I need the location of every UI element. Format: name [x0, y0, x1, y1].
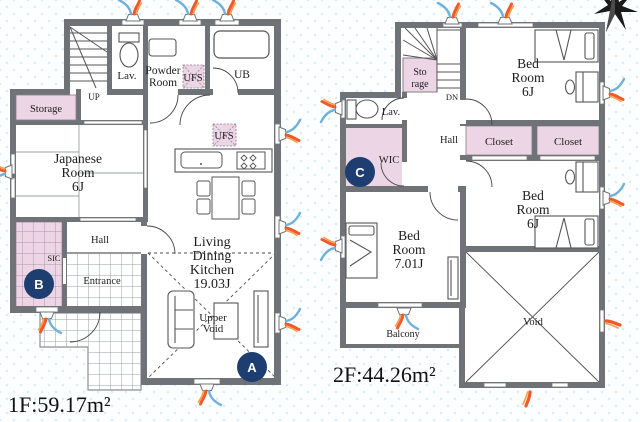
bedroom3-label-2: Room [392, 242, 426, 257]
kitchen [175, 149, 272, 172]
up-label: UP [88, 92, 100, 102]
powder-room-label-2: Room [149, 77, 177, 89]
porch-tiles [40, 313, 141, 390]
bedroom1-label-3: 6J [522, 84, 534, 99]
balcony-label: Balcony [386, 329, 419, 340]
marker-b-label: B [34, 277, 43, 292]
marker-a-label: A [247, 360, 257, 375]
japanese-room-label-1: Japanese [54, 151, 102, 166]
storage-2f-label-2: rage [411, 79, 429, 90]
floorplan-2f: Sto rage DN Lav. WIC Hall Bed Room 6J Cl… [321, 3, 624, 406]
point-marker-c: C [345, 157, 375, 187]
ldk-label-3: Kitchen [190, 263, 234, 278]
bedroom1-label-1: Bed [517, 56, 539, 71]
floor-2f-base [340, 22, 605, 388]
bedroom2-label-2: Room [516, 202, 550, 217]
wic-label: WIC [379, 155, 399, 166]
upper-void-label-2: Void [203, 323, 224, 335]
bedroom2-label-1: Bed [522, 188, 544, 203]
storage-1f-label: Storage [30, 104, 62, 115]
void-label: Void [523, 317, 543, 328]
ub-label: UB [234, 69, 250, 81]
point-marker-a: A [237, 352, 267, 382]
bedroom1-label-2: Room [511, 70, 545, 85]
floorplan-1f: UP Lav. Powder Room UFS UB Storage Japan… [0, 0, 300, 417]
ufs-bath-label: UFS [183, 73, 202, 84]
closet1-label: Closet [485, 136, 513, 148]
ldk-label-4: 19.03J [194, 277, 232, 292]
ldk-label-2: Dining [193, 249, 232, 264]
sic-label: SIC [47, 253, 61, 263]
point-marker-b: B [24, 269, 54, 299]
floorplan-page: UP Lav. Powder Room UFS UB Storage Japan… [0, 0, 640, 422]
floorplan-drawing: UP Lav. Powder Room UFS UB Storage Japan… [0, 0, 640, 422]
lav-1f-label: Lav. [117, 70, 136, 82]
entrance-label: Entrance [83, 276, 121, 287]
bedroom3-label-1: Bed [398, 228, 420, 243]
bedroom2-label-3: 6J [527, 216, 539, 231]
hall-2f-label: Hall [440, 135, 458, 146]
ufs-kitchen-label: UFS [214, 131, 233, 142]
storage-2f-label-1: Sto [413, 67, 426, 78]
closet2-label: Closet [554, 136, 582, 148]
lav-2f-label: Lav. [382, 107, 400, 118]
bedroom3-label-3: 7.01J [395, 256, 424, 271]
ldk-label-1: Living [193, 235, 230, 250]
japanese-room-label-3: 6J [72, 179, 84, 194]
marker-c-label: C [355, 165, 365, 180]
area-2f-label: 2F:44.26m² [333, 362, 436, 387]
dn-label: DN [446, 92, 458, 102]
hall-1f-label: Hall [91, 235, 109, 246]
japanese-room-label-2: Room [61, 165, 95, 180]
area-1f-label: 1F:59.17m² [8, 392, 111, 417]
lav-2f-fixtures [347, 100, 378, 119]
powder-room-label-1: Powder [145, 65, 180, 77]
